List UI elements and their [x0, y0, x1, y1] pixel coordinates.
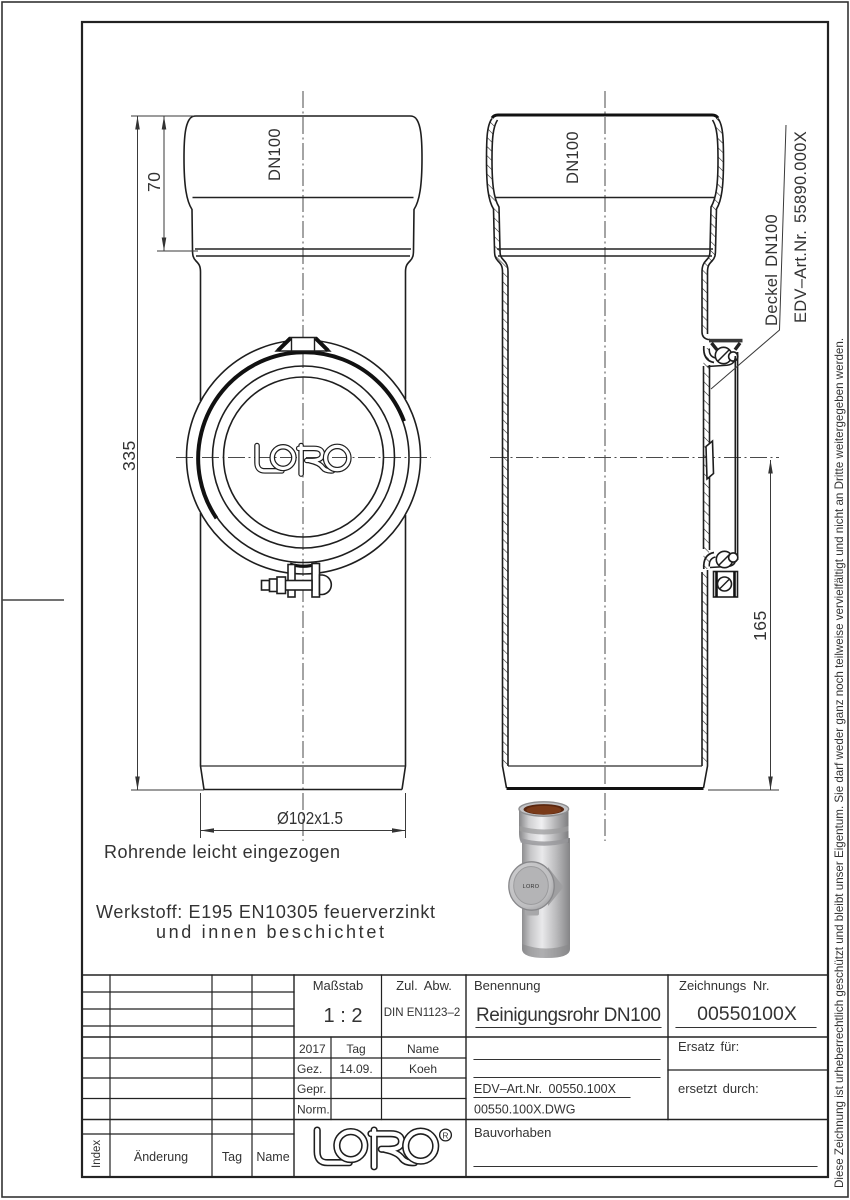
svg-text:165: 165	[750, 610, 770, 641]
svg-text:70: 70	[144, 172, 164, 192]
svg-text:und innen beschichtet: und innen beschichtet	[156, 922, 384, 942]
svg-text:DN100: DN100	[266, 128, 284, 181]
svg-text:Tag: Tag	[222, 1150, 242, 1164]
svg-text:Reinigungsrohr DN100: Reinigungsrohr DN100	[476, 1005, 661, 1026]
svg-text:DIN EN1123–2: DIN EN1123–2	[384, 1007, 461, 1019]
svg-text:Tag: Tag	[346, 1042, 365, 1056]
svg-text:Rohrende leicht eingezogen: Rohrende leicht eingezogen	[104, 842, 340, 862]
svg-text:R: R	[442, 1131, 448, 1141]
svg-text:Index: Index	[91, 1140, 103, 1168]
svg-text:LORO: LORO	[523, 884, 540, 890]
svg-text:Norm.: Norm.	[297, 1103, 330, 1117]
svg-text:Koeh: Koeh	[409, 1062, 437, 1076]
svg-text:2017: 2017	[299, 1042, 326, 1056]
svg-text:Name: Name	[256, 1150, 289, 1164]
svg-text:ersetzt durch:: ersetzt durch:	[678, 1081, 759, 1096]
svg-text:00550100X: 00550100X	[697, 1003, 797, 1025]
svg-text:335: 335	[119, 440, 139, 471]
svg-text:1 : 2: 1 : 2	[324, 1005, 363, 1027]
svg-text:Maßstab: Maßstab	[313, 978, 364, 993]
svg-text:Deckel DN100: Deckel DN100	[763, 214, 781, 326]
svg-text:Gez.: Gez.	[297, 1062, 322, 1076]
svg-text:Werkstoff: E195 EN10305 feuer: Werkstoff: E195 EN10305 feuerverzinkt	[96, 902, 435, 922]
svg-text:Ø102x1.5: Ø102x1.5	[277, 808, 343, 828]
svg-text:Benennung: Benennung	[474, 978, 541, 993]
svg-text:Zeichnungs Nr.: Zeichnungs Nr.	[679, 978, 769, 993]
svg-text:EDV–Art.Nr. 00550.100X: EDV–Art.Nr. 00550.100X	[474, 1082, 617, 1096]
svg-text:14.09.: 14.09.	[339, 1062, 372, 1076]
svg-text:Bauvorhaben: Bauvorhaben	[474, 1125, 551, 1140]
svg-text:Name: Name	[407, 1042, 439, 1056]
svg-text:Änderung: Änderung	[134, 1150, 188, 1164]
svg-text:EDV–Art.Nr. 55890.000X: EDV–Art.Nr. 55890.000X	[792, 131, 810, 323]
svg-text:Ersatz für:: Ersatz für:	[678, 1039, 739, 1054]
svg-text:00550.100X.DWG: 00550.100X.DWG	[474, 1103, 575, 1117]
svg-text:Zul. Abw.: Zul. Abw.	[396, 978, 452, 993]
svg-text:DN100: DN100	[564, 131, 582, 184]
svg-text:Gepr.: Gepr.	[297, 1082, 326, 1096]
svg-text:Diese Zeichnung ist urheberrec: Diese Zeichnung ist urheberrechtlich ges…	[833, 338, 846, 1188]
